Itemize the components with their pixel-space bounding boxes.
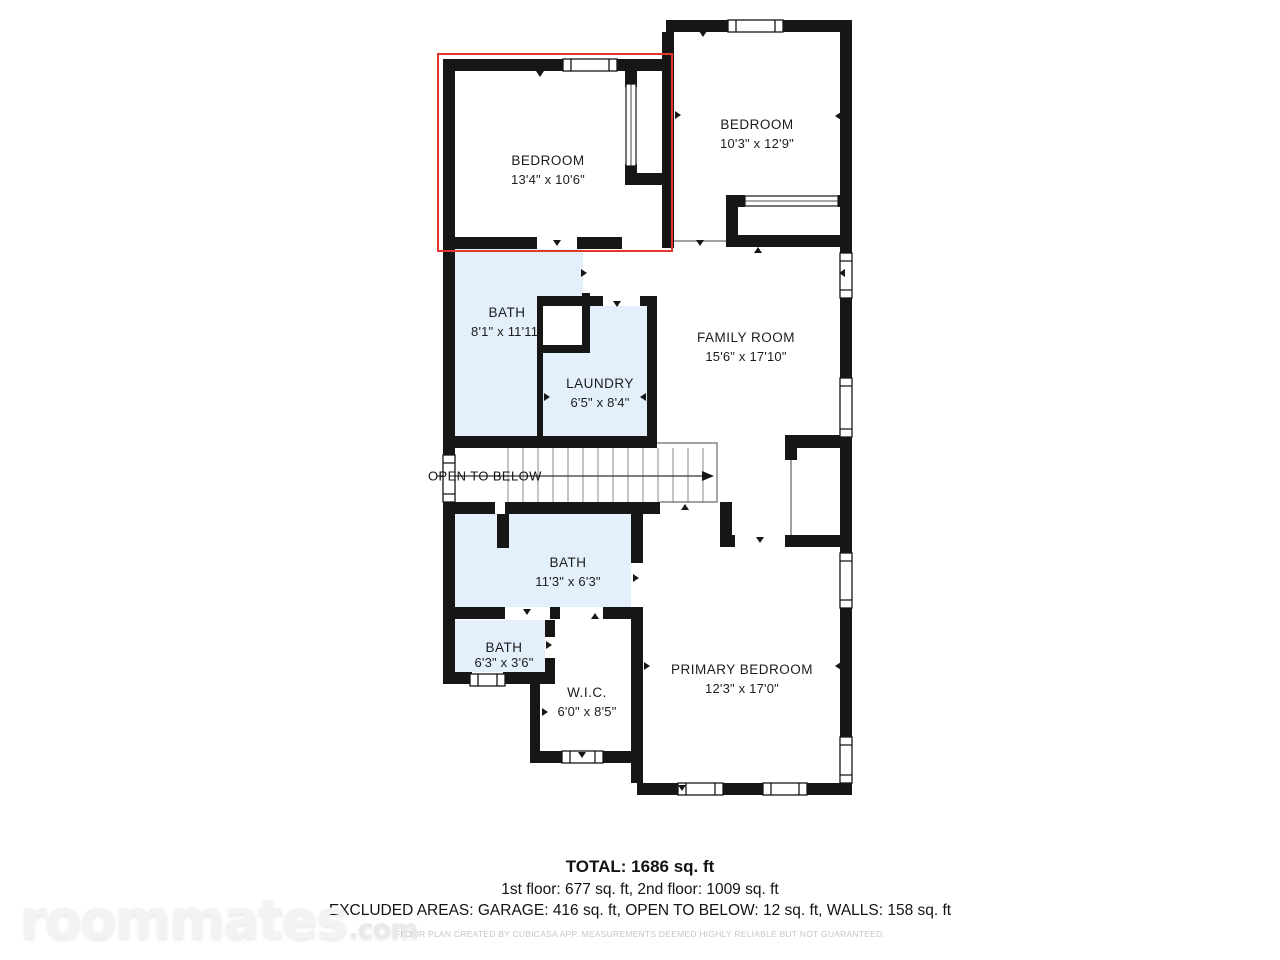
room-name: W.I.C. [557,683,616,702]
room-name: BEDROOM [720,115,794,134]
room-dimensions: 13'4" x 10'6" [511,170,585,189]
room-dimensions: 8'1" x 11'11" [471,322,543,341]
room-label-wic: W.I.C. 6'0" x 8'5" [557,683,616,721]
watermark-tld: .com [348,914,417,945]
room-dimensions: 6'5" x 8'4" [566,393,634,412]
room-dimensions: 6'0" x 8'5" [557,702,616,721]
floorplan-page: BEDROOM 13'4" x 10'6" BEDROOM 10'3" x 12… [0,0,1280,960]
room-dimensions: 6'3" x 3'6" [474,655,533,670]
room-label-family-room: FAMILY ROOM 15'6" x 17'10" [697,328,795,366]
room-name: BEDROOM [511,151,585,170]
watermark-logo: roommates.com [20,888,417,951]
room-dimensions: 12'3" x 17'0" [671,679,813,698]
room-name: BATH [474,640,533,655]
floorplan-drawing [0,0,1280,960]
room-label-laundry: LAUNDRY 6'5" x 8'4" [566,374,634,412]
room-name: LAUNDRY [566,374,634,393]
room-label-bath-3: BATH 6'3" x 3'6" [474,640,533,670]
total-area: TOTAL: 1686 sq. ft [0,854,1280,879]
room-dimensions: 11'3" x 6'3" [535,572,601,591]
room-name: BATH [535,553,601,572]
room-label-bath-2: BATH 11'3" x 6'3" [535,553,601,591]
threshold-lines [674,241,791,535]
shower-box [543,306,582,345]
room-name: BATH [471,303,543,322]
room-label-bath-1: BATH 8'1" x 11'11" [471,303,543,341]
watermark-brand: roommates [20,888,346,951]
room-name: PRIMARY BEDROOM [671,660,813,679]
room-dimensions: 10'3" x 12'9" [720,134,794,153]
open-to-below-label: OPEN TO BELOW [428,469,542,484]
room-name: FAMILY ROOM [697,328,795,347]
room-label-bedroom-1: BEDROOM 13'4" x 10'6" [511,151,585,189]
room-dimensions: 15'6" x 17'10" [697,347,795,366]
room-label-primary-bedroom: PRIMARY BEDROOM 12'3" x 17'0" [671,660,813,698]
room-label-bedroom-2: BEDROOM 10'3" x 12'9" [720,115,794,153]
